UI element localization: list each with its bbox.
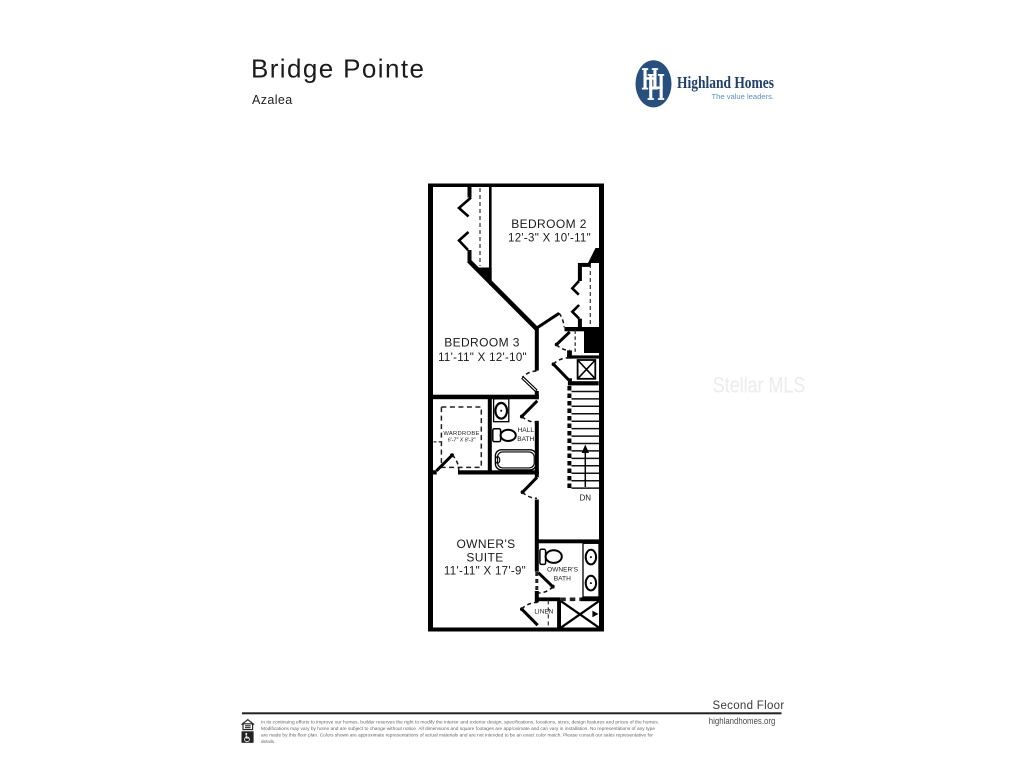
svg-text:BATH: BATH bbox=[554, 575, 571, 582]
svg-text:The value leaders.: The value leaders. bbox=[712, 92, 774, 101]
svg-text:Highland Homes: Highland Homes bbox=[677, 73, 774, 92]
svg-text:BEDROOM 3: BEDROOM 3 bbox=[444, 336, 520, 350]
svg-text:BATH: BATH bbox=[517, 436, 534, 443]
svg-text:OWNER'S: OWNER'S bbox=[547, 566, 579, 573]
svg-text:DN: DN bbox=[580, 494, 592, 503]
svg-text:Stellar MLS: Stellar MLS bbox=[713, 373, 806, 398]
svg-text:HALL: HALL bbox=[518, 427, 535, 434]
svg-text:Bridge Pointe: Bridge Pointe bbox=[251, 54, 425, 84]
svg-text:details.: details. bbox=[261, 739, 275, 744]
svg-text:Modifications may vary by home: Modifications may vary by home and are s… bbox=[261, 726, 656, 731]
svg-text:Azalea: Azalea bbox=[252, 93, 293, 107]
svg-text:12'-3" X 10'-11": 12'-3" X 10'-11" bbox=[508, 233, 591, 245]
svg-text:11'-11" X 12'-10": 11'-11" X 12'-10" bbox=[438, 352, 527, 364]
svg-text:are made by this floor plan. C: are made by this floor plan. Colors show… bbox=[261, 733, 654, 738]
svg-text:BEDROOM 2: BEDROOM 2 bbox=[511, 217, 587, 231]
svg-text:SUITE: SUITE bbox=[466, 551, 503, 565]
svg-text:In its continuing efforts to i: In its continuing efforts to improve our… bbox=[261, 720, 659, 725]
svg-text:11'-11" X 17'-9": 11'-11" X 17'-9" bbox=[444, 566, 526, 578]
svg-text:Second Floor: Second Floor bbox=[713, 700, 785, 712]
svg-text:LINEN: LINEN bbox=[534, 609, 553, 616]
svg-text:highlandhomes.org: highlandhomes.org bbox=[709, 716, 776, 727]
svg-text:WARDROBE: WARDROBE bbox=[443, 431, 479, 437]
svg-text:OWNER'S: OWNER'S bbox=[456, 537, 515, 551]
svg-text:6'-7" X 8'-3": 6'-7" X 8'-3" bbox=[448, 438, 477, 444]
